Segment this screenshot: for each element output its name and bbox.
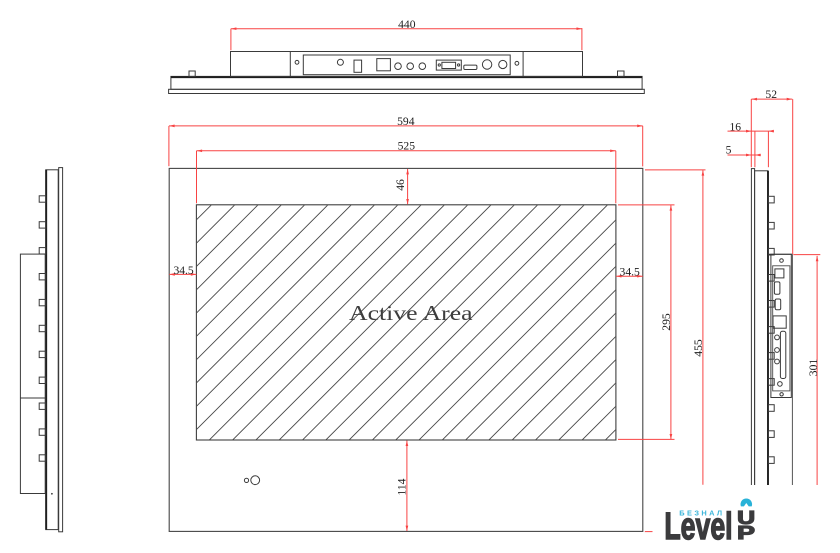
svg-text:БЕЗНАЛ: БЕЗНАЛ — [679, 509, 724, 518]
svg-text:5: 5 — [726, 143, 732, 156]
svg-text:114: 114 — [395, 478, 408, 495]
svg-text:P: P — [737, 523, 755, 543]
svg-text:34.5: 34.5 — [173, 264, 193, 277]
svg-text:46: 46 — [394, 179, 407, 191]
svg-text:594: 594 — [397, 115, 415, 128]
svg-text:295: 295 — [660, 313, 673, 331]
svg-text:52: 52 — [765, 88, 777, 101]
svg-text:34.5: 34.5 — [620, 265, 640, 278]
svg-text:525: 525 — [398, 140, 416, 153]
svg-text:440: 440 — [398, 18, 416, 31]
svg-text:16: 16 — [730, 120, 742, 133]
svg-text:455: 455 — [692, 339, 705, 357]
svg-text:Active Area: Active Area — [349, 301, 473, 325]
svg-text:301: 301 — [807, 359, 820, 377]
